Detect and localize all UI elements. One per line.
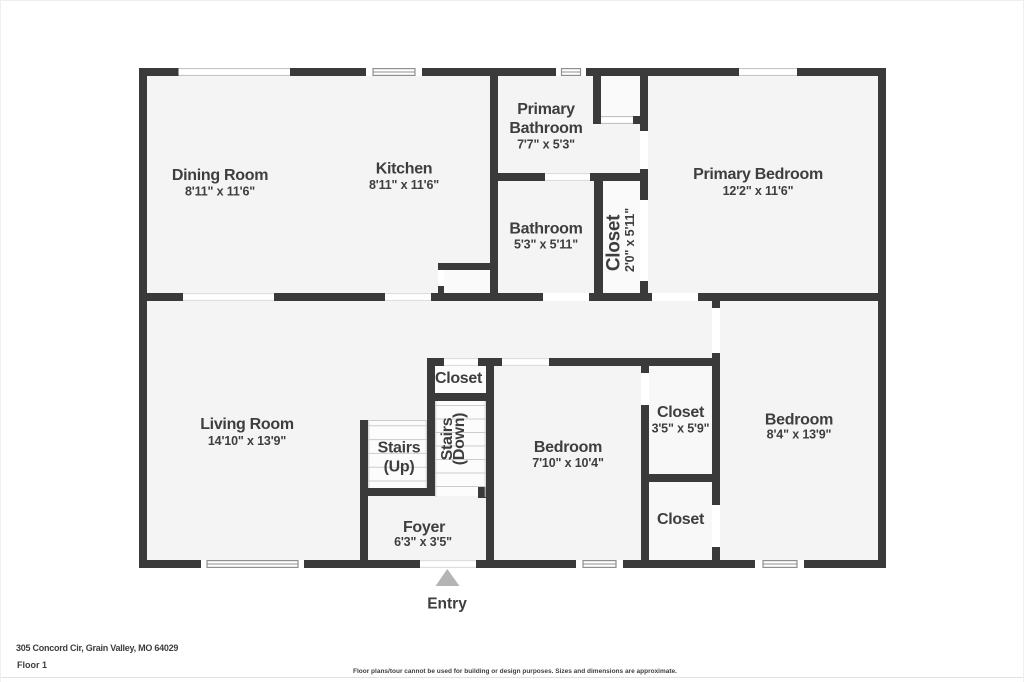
svg-text:Primary Bedroom: Primary Bedroom — [693, 166, 823, 183]
svg-text:Floor plans/tour cannot be use: Floor plans/tour cannot be used for buil… — [353, 668, 677, 675]
svg-text:8'11" x 11'6": 8'11" x 11'6" — [185, 185, 255, 199]
svg-text:Bedroom: Bedroom — [765, 412, 833, 429]
svg-text:7'10" x 10'4": 7'10" x 10'4" — [532, 456, 604, 470]
svg-text:Stairs: Stairs — [378, 440, 421, 457]
svg-text:6'3" x 3'5": 6'3" x 3'5" — [394, 535, 452, 549]
svg-text:Closet: Closet — [657, 511, 705, 528]
svg-text:Bathroom: Bathroom — [509, 120, 582, 137]
svg-text:Floor 1: Floor 1 — [17, 660, 47, 670]
svg-text:Closet: Closet — [604, 214, 625, 271]
svg-text:5'3" x 5'11": 5'3" x 5'11" — [514, 238, 578, 252]
svg-text:(Down): (Down) — [451, 413, 468, 465]
svg-text:Bathroom: Bathroom — [509, 221, 582, 238]
svg-text:2'0" x 5'11": 2'0" x 5'11" — [623, 208, 637, 272]
svg-text:Foyer: Foyer — [403, 519, 445, 536]
svg-text:Bedroom: Bedroom — [534, 439, 602, 456]
svg-text:8'4" x 13'9": 8'4" x 13'9" — [767, 428, 832, 442]
svg-text:Closet: Closet — [435, 370, 483, 387]
svg-text:7'7" x 5'3": 7'7" x 5'3" — [517, 138, 575, 152]
svg-text:Primary: Primary — [517, 101, 575, 118]
svg-text:12'2" x 11'6": 12'2" x 11'6" — [723, 184, 794, 198]
svg-text:Kitchen: Kitchen — [376, 161, 433, 178]
svg-text:(Up): (Up) — [384, 459, 415, 476]
svg-text:Living Room: Living Room — [200, 416, 294, 433]
svg-text:Closet: Closet — [657, 404, 705, 421]
svg-text:Dining Room: Dining Room — [172, 167, 268, 184]
svg-text:305 Concord Cir, Grain Valley,: 305 Concord Cir, Grain Valley, MO 64029 — [16, 643, 178, 653]
svg-text:8'11" x 11'6": 8'11" x 11'6" — [369, 178, 439, 192]
svg-text:14'10" x 13'9": 14'10" x 13'9" — [208, 434, 286, 448]
svg-text:3'5" x 5'9": 3'5" x 5'9" — [652, 422, 710, 436]
svg-text:Entry: Entry — [427, 596, 467, 613]
